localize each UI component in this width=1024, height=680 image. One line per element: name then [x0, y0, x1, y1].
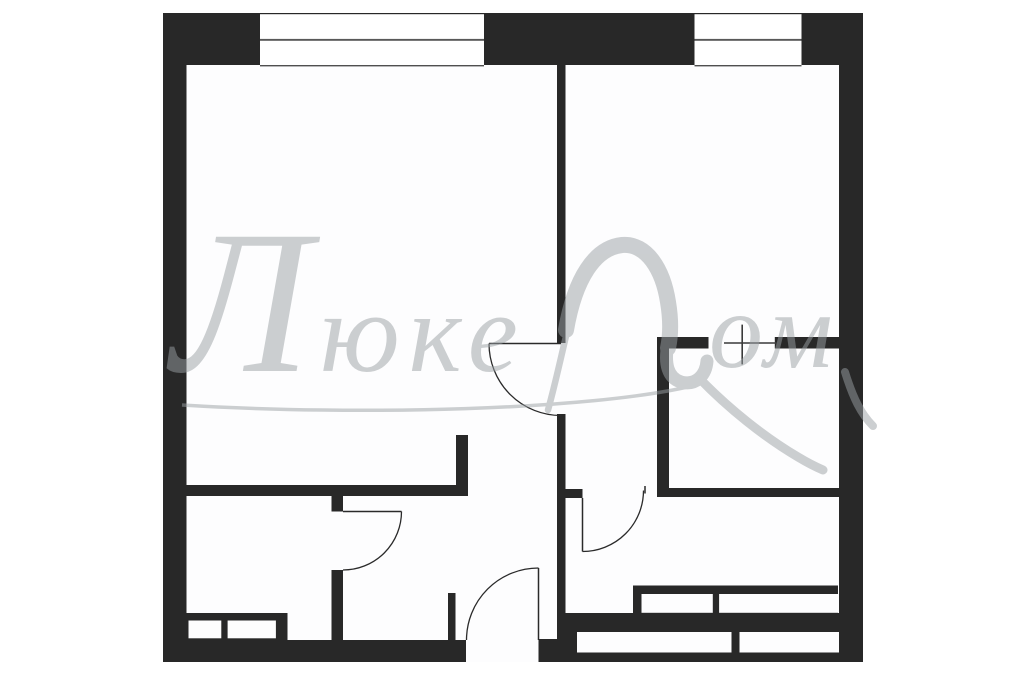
- svg-text:ом: ом: [709, 272, 838, 391]
- svg-text:юке: юке: [320, 271, 527, 396]
- svg-text:Л: Л: [166, 189, 321, 416]
